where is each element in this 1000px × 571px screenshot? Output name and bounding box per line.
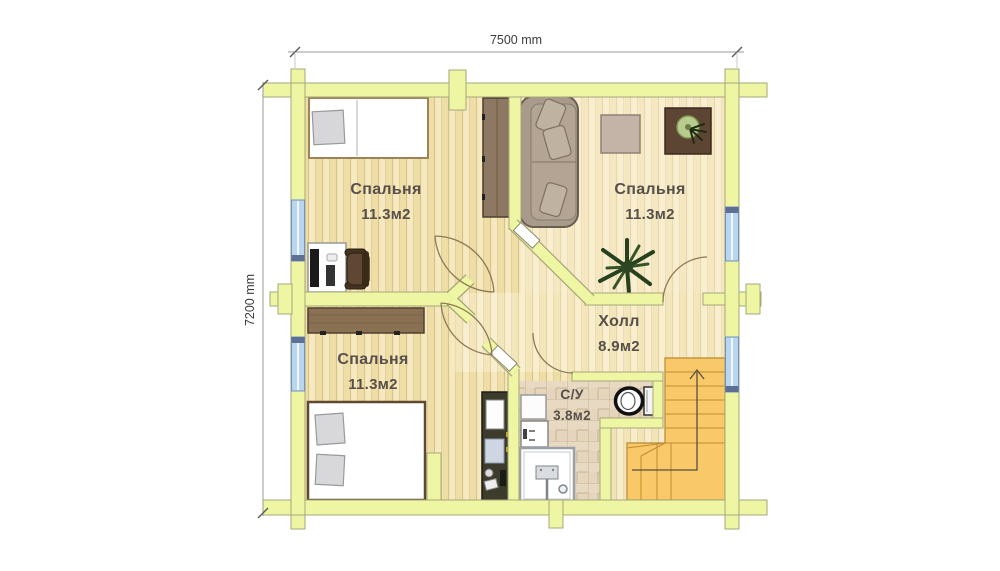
room-name: Спальня [614,177,685,202]
wardrobe [482,98,512,217]
log-end [725,69,739,83]
log-end [278,284,292,314]
log-end [291,69,305,83]
washbasin [521,421,548,447]
floor-plan: 7500 mm 7200 mm Спальня 11.3м2 Спальня 1… [0,0,1000,571]
log-end [291,515,305,529]
shower-cabin [520,448,574,503]
room-label-bedroom-top-right: Спальня 11.3м2 [614,177,685,227]
dimension-width-label: 7500 mm [490,33,542,47]
room-area: 8.9м2 [598,334,640,359]
wall-between-top-bedrooms [509,97,521,229]
dimension-height-label: 7200 mm [243,274,257,326]
wall-right [725,83,739,515]
room-area: 11.3м2 [350,202,421,227]
window [726,337,739,392]
window [726,207,739,261]
pillow [312,110,345,145]
toilet [616,387,656,415]
double-bed [308,402,425,500]
computer-desk [308,243,346,292]
monitor [310,249,319,287]
corner-sofa [520,96,578,227]
room-name: Спальня [350,177,421,202]
plant-table [665,108,711,154]
drain [559,485,567,493]
pillow [315,413,345,445]
wall-stairs-side [600,428,611,500]
window [292,337,305,391]
window [292,200,305,261]
shower-head [536,466,558,479]
floor-plan-drawing [0,0,1000,571]
pc-tower [326,265,335,286]
wall-top [291,83,739,97]
room-area: 11.3м2 [614,202,685,227]
log-end [263,500,291,515]
log-end [549,500,563,528]
log-end [746,284,760,314]
dark-cabinet [482,392,510,502]
office-chair [345,249,369,289]
log-end [725,515,739,529]
wall-hall-bedroom [585,293,663,305]
room-name: С/У [553,384,591,405]
pillow [315,454,345,485]
wall-bottom [291,500,739,515]
room-area: 3.8м2 [553,405,591,426]
room-label-bathroom: С/У 3.8м2 [553,384,591,426]
log-end [449,70,466,110]
room-area: 11.3м2 [337,372,408,397]
room-label-hall: Холл 8.9м2 [598,309,640,359]
room-label-bedroom-bottom-left: Спальня 11.3м2 [337,347,408,397]
room-label-bedroom-top-left: Спальня 11.3м2 [350,177,421,227]
coffee-table [601,115,640,153]
log-end [739,83,767,97]
single-bed [309,98,428,158]
wall-bathroom-left [508,368,519,500]
wall-hall-bedroom [703,293,725,305]
wall-left [291,83,305,515]
log-end [263,83,291,97]
wall-stub [427,453,441,500]
room-name: Холл [598,309,640,334]
bath-cabinet [521,395,546,419]
wall-bathroom-top [572,372,663,381]
wall-between-left-bedrooms [305,292,455,306]
room-name: Спальня [337,347,408,372]
wall-bathroom-nook [600,418,663,428]
log-end [739,500,767,515]
shelf [308,308,424,335]
